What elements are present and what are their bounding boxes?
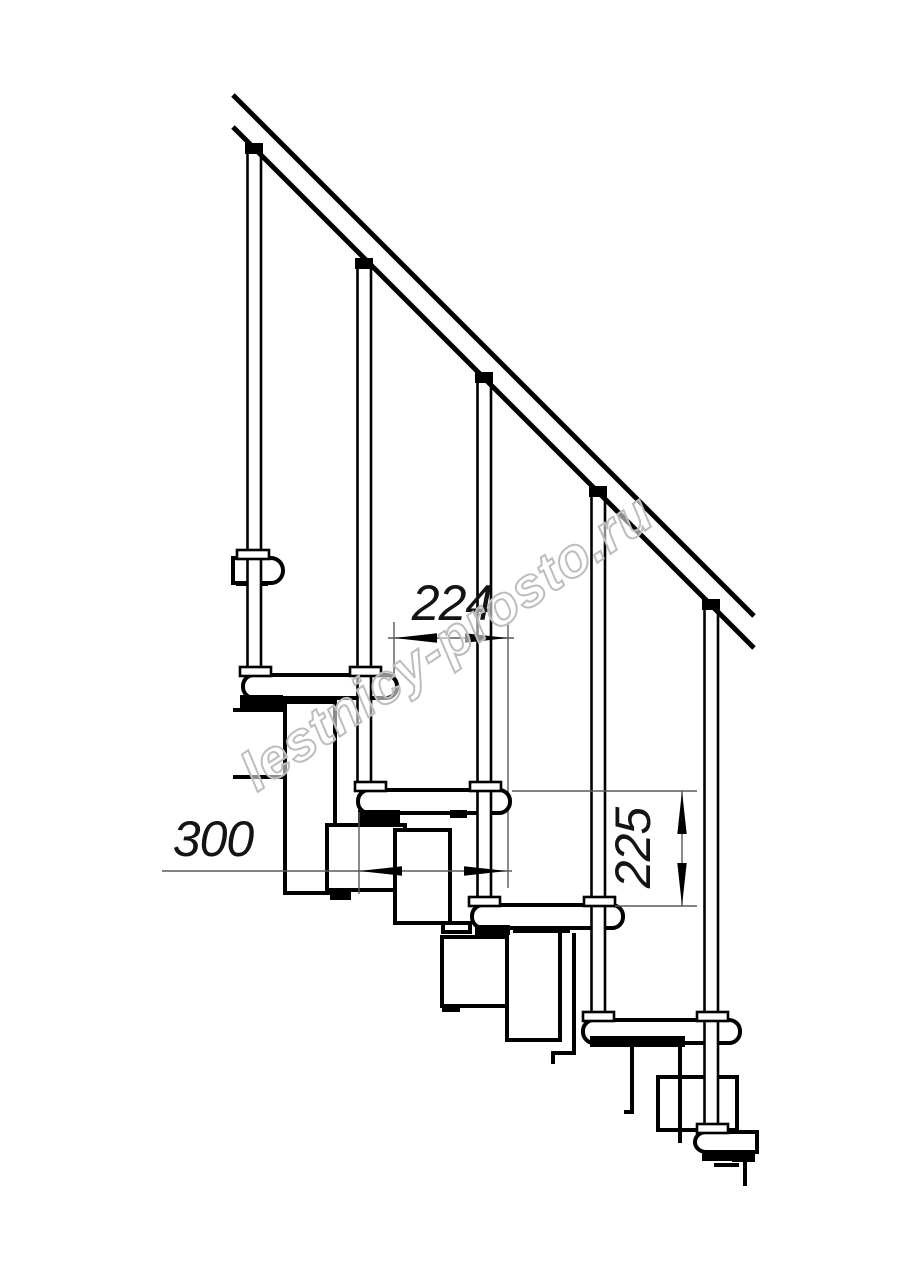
contour-under-step-5a bbox=[624, 1047, 632, 1112]
baluster-plate bbox=[584, 897, 615, 906]
baluster-plate bbox=[469, 897, 500, 906]
handrail-top-line bbox=[233, 95, 754, 616]
clamp-tread-4a bbox=[475, 925, 510, 935]
dim-224-arrow-left bbox=[394, 633, 437, 642]
clamp-tread-3a bbox=[358, 810, 400, 824]
drawing-canvas: 224 300 225 lestnicy-prosto.ru bbox=[0, 0, 914, 1280]
baluster-plate bbox=[350, 667, 381, 676]
module-box-riser-4 bbox=[658, 1077, 737, 1130]
baluster-5 bbox=[705, 608, 719, 1128]
dim-224-group: 224 bbox=[388, 575, 514, 676]
dim-224-label: 224 bbox=[411, 575, 492, 631]
baluster-plate bbox=[470, 782, 501, 791]
clamp-tread-4b bbox=[513, 926, 570, 933]
baluster-plate bbox=[237, 550, 269, 559]
module-box-riser-3 bbox=[507, 928, 560, 1040]
module-box-riser-2 bbox=[395, 830, 450, 923]
baluster-plate bbox=[355, 782, 386, 791]
baluster-plate bbox=[697, 1012, 728, 1021]
dim-225-label: 225 bbox=[605, 807, 661, 890]
baluster-plate bbox=[583, 1012, 614, 1021]
handrail-bottom-line bbox=[233, 127, 754, 648]
staircase-elevation-drawing: 224 300 225 bbox=[0, 0, 914, 1280]
dim-225-group: 225 bbox=[512, 791, 697, 906]
dim-225-arrow-up bbox=[677, 791, 686, 834]
baluster-1 bbox=[248, 152, 262, 672]
baluster-4 bbox=[592, 495, 606, 1017]
tread-2 bbox=[243, 675, 397, 698]
clamp-tread-6a bbox=[702, 1150, 732, 1161]
clamp-tread-5 bbox=[590, 1036, 685, 1047]
baluster-plate bbox=[240, 667, 271, 676]
baluster-2 bbox=[358, 267, 372, 787]
module-box-upper-cut bbox=[233, 710, 290, 777]
dim-225-arrow-down bbox=[677, 863, 686, 906]
handrail bbox=[233, 95, 754, 648]
module-foot-small bbox=[443, 923, 470, 932]
baluster-plate bbox=[697, 1124, 728, 1133]
clamp-tread-3b bbox=[450, 810, 467, 818]
dim-300-label: 300 bbox=[173, 811, 255, 867]
clamp-tread-2b bbox=[283, 696, 333, 704]
clamp-tread-2a bbox=[240, 695, 283, 708]
clamp-tread-6b bbox=[732, 1153, 755, 1162]
tread-6 bbox=[695, 1132, 757, 1152]
